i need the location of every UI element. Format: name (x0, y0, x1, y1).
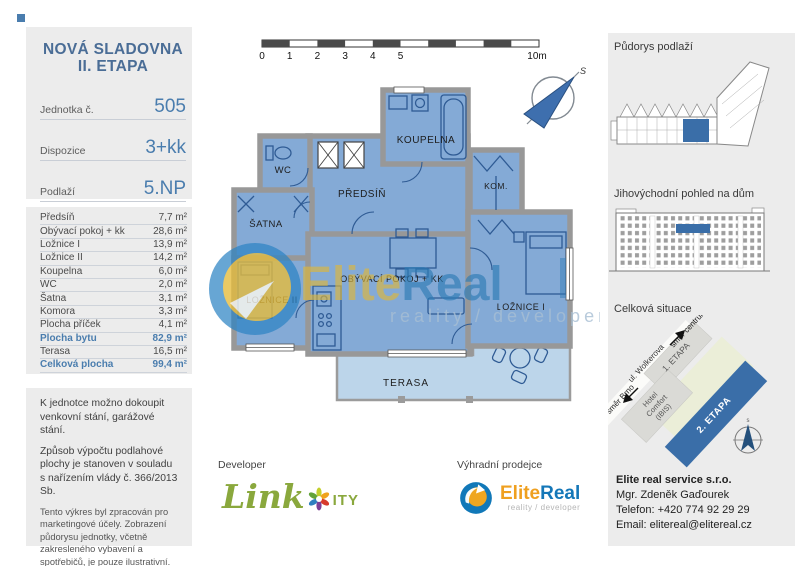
flower-icon (307, 486, 331, 512)
site-compass-label: s (747, 418, 750, 424)
room-label-wc: WC (275, 165, 292, 176)
note-disclaimer: Tento výkres byl zpracován pro marketing… (40, 506, 180, 566)
scale-bar: 0 1 2 3 4 5 10m (259, 40, 547, 62)
site-plan: 1. ETAPA 2. ETAPA Hotel Comfort (IBIS) s… (608, 315, 795, 475)
scale-tick: 2 (315, 51, 321, 62)
highlighted-unit (676, 224, 710, 233)
area-label: Komora (40, 306, 75, 318)
seller-label: Výhradní prodejce (457, 459, 542, 471)
area-row: Ložnice I13,9 m² (40, 239, 187, 252)
link-logo-suffix: ITY (333, 492, 359, 512)
area-label: Plocha bytu (40, 333, 97, 345)
area-label: Šatna (40, 293, 66, 305)
fact-label: Jednotka č. (40, 104, 94, 118)
area-row: WC2,0 m² (40, 279, 187, 292)
area-value: 82,9 m² (153, 333, 187, 345)
section-title-site-plan: Celková situace (614, 303, 692, 315)
svg-text:EliteReal: EliteReal (300, 258, 503, 311)
contact-email: Email: elitereal@elitereal.cz (616, 518, 752, 533)
area-table: Předsíň7,7 m² Obývací pokoj + kk28,6 m² … (26, 207, 192, 374)
area-label: Celková plocha (40, 359, 113, 371)
seller-logo: EliteReal reality / developer (459, 481, 580, 515)
link-logo-script: Link (222, 482, 305, 512)
area-value: 13,9 m² (153, 239, 187, 251)
area-label: Ložnice II (40, 252, 83, 264)
area-label: Koupelna (40, 266, 82, 278)
fact-value: 5.NP (144, 178, 186, 200)
area-row: Koupelna6,0 m² (40, 266, 187, 279)
area-label: Ložnice I (40, 239, 80, 251)
sidebar-header-block: NOVÁ SLADOVNA II. ETAPA Jednotka č. 505 … (26, 27, 192, 199)
fact-floor: Podlaží 5.NP (40, 161, 186, 202)
elitereal-brand1: Elite (500, 483, 540, 504)
area-value: 99,4 m² (153, 359, 187, 371)
floor-overview-map (608, 59, 795, 181)
watermark-brand1: Elite (300, 258, 401, 311)
scale-tick: 4 (370, 51, 376, 62)
room-label-koupelna: KOUPELNA (397, 135, 455, 146)
area-row: Předsíň7,7 m² (40, 212, 187, 225)
room-label-terasa: TERASA (383, 378, 429, 389)
area-value: 16,5 m² (153, 346, 187, 358)
elitereal-brand2: Real (540, 483, 580, 504)
area-label: Plocha příček (40, 319, 101, 331)
fact-unit-number: Jednotka č. 505 (40, 79, 186, 120)
developer-label: Developer (218, 459, 266, 471)
note-paragraph: Způsob výpočtu podlahové plochy je stano… (40, 445, 180, 499)
fact-label: Podlaží (40, 186, 75, 200)
area-label: Obývací pokoj + kk (40, 226, 125, 238)
contact-block: Elite real service s.r.o. Mgr. Zdeněk Ga… (616, 473, 752, 533)
area-label: WC (40, 279, 57, 291)
compass-north-label: S (580, 66, 586, 76)
area-value: 6,0 m² (159, 266, 187, 278)
section-title-floor-overview: Půdorys podlaží (614, 41, 693, 53)
highlighted-unit (683, 119, 709, 142)
floorplan-drawing: 0 1 2 3 4 5 10m S (205, 30, 600, 482)
key-facts: Jednotka č. 505 Dispozice 3+kk Podlaží 5… (40, 79, 186, 202)
area-row: Terasa16,5 m² (40, 346, 187, 359)
floorplan-sheet: NOVÁ SLADOVNA II. ETAPA Jednotka č. 505 … (0, 0, 800, 566)
contact-person: Mgr. Zdeněk Gaďourek (616, 488, 752, 503)
area-value: 7,7 m² (159, 212, 187, 224)
elitereal-logo-icon (459, 481, 493, 515)
contact-company: Elite real service s.r.o. (616, 473, 752, 488)
room-label-satna: ŠATNA (249, 219, 283, 230)
area-value: 4,1 m² (159, 319, 187, 331)
note-paragraph: K jednotce možno dokoupit venkovní stání… (40, 397, 180, 438)
area-value: 28,6 m² (153, 226, 187, 238)
area-row-apartment-total: Plocha bytu82,9 m² (40, 333, 187, 346)
area-row: Obývací pokoj + kk28,6 m² (40, 225, 187, 238)
watermark-brand2: Real (401, 258, 502, 311)
site-compass-icon: s (733, 418, 763, 453)
right-panel: Půdorys podlaží Jihovýchodní pohled na d… (608, 33, 795, 546)
fact-layout: Dispozice 3+kk (40, 120, 186, 161)
elitereal-tagline: reality / developer (500, 503, 580, 512)
room-label-predsin: PŘEDSÍŇ (338, 187, 386, 200)
notes-block: K jednotce možno dokoupit venkovní stání… (26, 388, 192, 546)
corner-marker (17, 14, 25, 22)
scale-tick: 3 (342, 51, 348, 62)
area-row: Šatna3,1 m² (40, 292, 187, 305)
scale-tick: 5 (398, 51, 404, 62)
building-elevation (608, 203, 795, 295)
fact-label: Dispozice (40, 145, 86, 159)
area-value: 14,2 m² (153, 252, 187, 264)
area-label: Předsíň (40, 212, 74, 224)
scale-tick: 0 (259, 51, 265, 62)
compass-icon: S (524, 66, 586, 128)
watermark-tagline: reality / developer (390, 306, 600, 326)
scale-end-label: 10m (527, 51, 546, 62)
area-row: Ložnice II14,2 m² (40, 252, 187, 265)
room-koupelna (383, 90, 468, 164)
fact-value: 505 (154, 96, 186, 118)
developer-logo: Link ITY (222, 482, 359, 512)
area-value: 2,0 m² (159, 279, 187, 291)
area-row: Komora3,3 m² (40, 306, 187, 319)
project-title-line1: NOVÁ SLADOVNA (40, 41, 186, 58)
scale-tick: 1 (287, 51, 293, 62)
section-title-elevation: Jihovýchodní pohled na dům (614, 188, 754, 200)
area-row: Plocha příček4,1 m² (40, 319, 187, 332)
area-label: Terasa (40, 346, 70, 358)
fact-value: 3+kk (145, 137, 186, 159)
area-value: 3,1 m² (159, 293, 187, 305)
project-title-line2: II. ETAPA (40, 58, 186, 75)
area-value: 3,3 m² (159, 306, 187, 318)
contact-phone: Telefon: +420 774 92 29 29 (616, 503, 752, 518)
room-label-kom: KOM. (484, 181, 508, 191)
area-row-grand-total: Celková plocha99,4 m² (40, 359, 187, 372)
